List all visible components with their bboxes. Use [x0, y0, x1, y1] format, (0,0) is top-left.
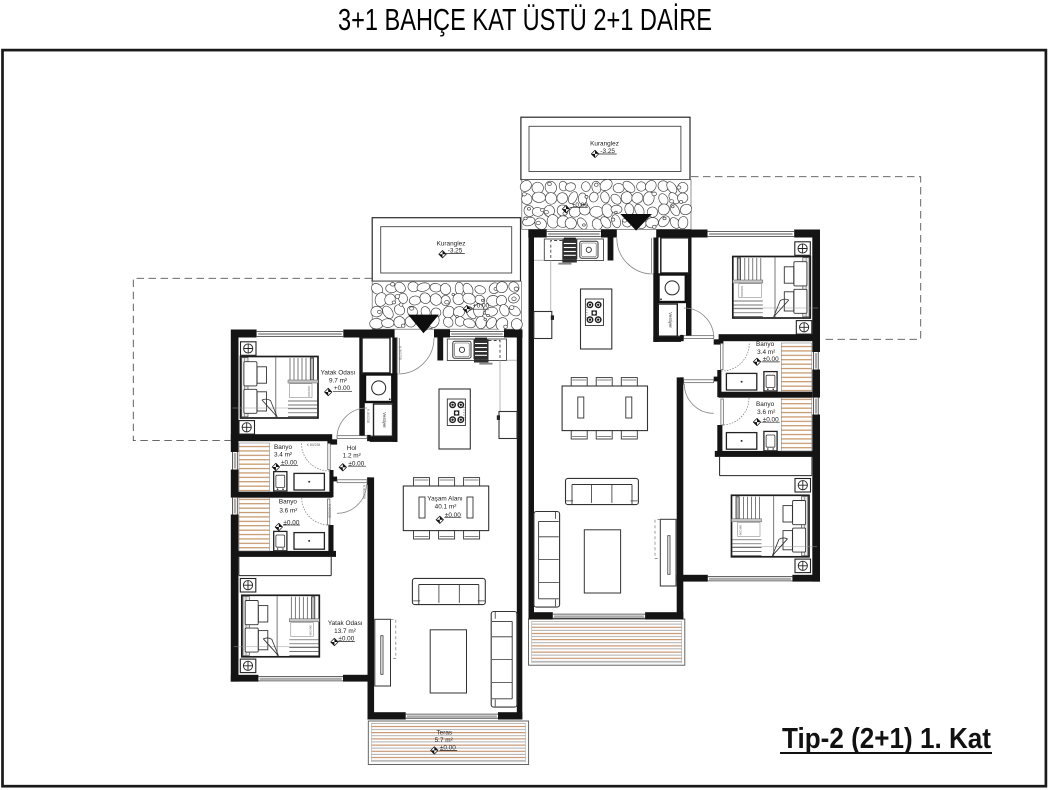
svg-text:Vestiyer: Vestiyer — [382, 412, 387, 428]
svg-text:Banyo: Banyo — [279, 499, 298, 506]
svg-text:3.6 m²: 3.6 m² — [757, 409, 775, 416]
svg-text:5.7 m²: 5.7 m² — [435, 737, 453, 744]
svg-text:Yatak Odası: Yatak Odası — [328, 620, 363, 627]
svg-text:40.1 m²: 40.1 m² — [435, 504, 457, 511]
svg-text:1.2 m²: 1.2 m² — [343, 452, 361, 459]
svg-text:3.4 m²: 3.4 m² — [757, 349, 775, 356]
svg-text:K 90/238: K 90/238 — [398, 346, 402, 360]
svg-text:3+1 BAHÇE KAT ÜSTÜ 2+1 DAİRE: 3+1 BAHÇE KAT ÜSTÜ 2+1 DAİRE — [338, 2, 712, 37]
svg-text:±0.00: ±0.00 — [348, 461, 364, 468]
svg-text:K 80/238: K 80/238 — [307, 443, 321, 447]
svg-text:K 80/238: K 80/238 — [366, 409, 370, 423]
svg-text:Banyo: Banyo — [756, 341, 775, 348]
svg-text:±0.00: ±0.00 — [283, 519, 299, 526]
svg-text:+0.00: +0.00 — [473, 302, 490, 309]
svg-text:9.7 m²: 9.7 m² — [329, 377, 347, 384]
svg-text:K 80/238: K 80/238 — [328, 504, 332, 518]
svg-text:Kuranglez: Kuranglez — [590, 141, 619, 148]
svg-text:Hol: Hol — [347, 445, 357, 452]
svg-text:+0.00: +0.00 — [572, 202, 589, 209]
svg-text:Tip-2 (2+1) 1. Kat: Tip-2 (2+1) 1. Kat — [782, 723, 991, 755]
svg-text:3.4 m²: 3.4 m² — [274, 452, 292, 459]
svg-text:3.6 m²: 3.6 m² — [279, 508, 297, 515]
svg-text:Banyo: Banyo — [274, 444, 293, 451]
svg-text:Yaşam Alanı: Yaşam Alanı — [427, 496, 463, 503]
svg-text:Teras: Teras — [436, 730, 452, 737]
svg-text:13.7 m²: 13.7 m² — [334, 628, 356, 635]
svg-text:K 80/238: K 80/238 — [362, 485, 366, 499]
svg-text:Vestiyer: Vestiyer — [668, 312, 673, 328]
svg-text:Yatak Odası: Yatak Odası — [321, 370, 356, 377]
svg-text:Banyo: Banyo — [756, 401, 775, 408]
